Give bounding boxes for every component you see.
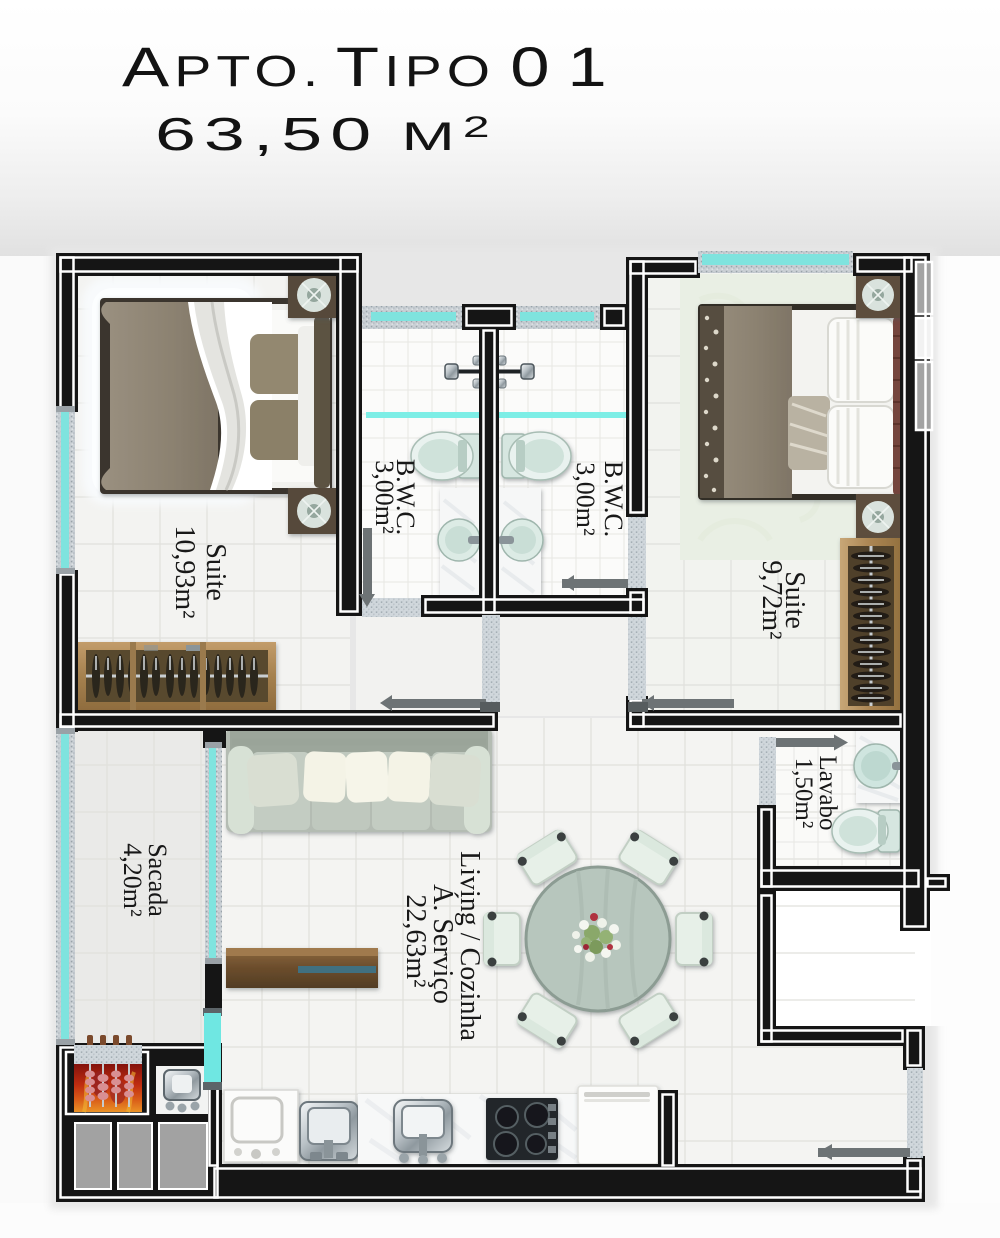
svg-text:Suite: Suite bbox=[200, 543, 231, 601]
svg-text:3,00m²: 3,00m² bbox=[370, 460, 399, 534]
svg-text:Lavabo: Lavabo bbox=[814, 756, 841, 831]
svg-text:4,20m²: 4,20m² bbox=[118, 843, 147, 917]
svg-text:10,93m²: 10,93m² bbox=[169, 525, 200, 618]
svg-text:9,72m²: 9,72m² bbox=[756, 560, 787, 639]
svg-text:22,63m²: 22,63m² bbox=[400, 894, 431, 987]
svg-text:B.W.C.: B.W.C. bbox=[599, 461, 628, 537]
svg-text:1,50m²: 1,50m² bbox=[790, 758, 817, 829]
svg-text:63,50M2: 63,50M2 bbox=[155, 109, 498, 161]
svg-text:3,00m²: 3,00m² bbox=[571, 462, 600, 536]
